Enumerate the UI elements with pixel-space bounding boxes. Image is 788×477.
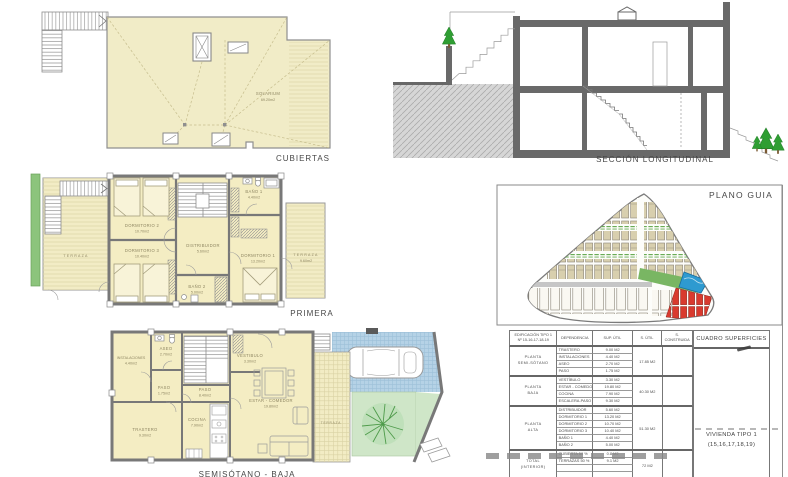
group-total: 40.30 M2 [633,377,662,405]
vivienda-tipo: VIVIENDA TIPO 1 (15,16,17,18,19) [694,431,769,451]
header-sup-util: SUP. ÚTIL [593,331,633,345]
table-dep-cell: TRASTERO [557,347,593,354]
stair-landing [196,194,209,208]
rows: TRASTERO9.00 M2 INSTALACIONES4.40 M2 ASE… [557,347,633,375]
terraza-right-hatch [286,203,325,298]
cuadro-superficies-box: CUADRO SUPERFICIES VIVIENDA TIPO 1 (15,1… [693,330,770,477]
first-floor-plan: TERRAZA DORMITORIO 2 10.70m2 D [31,173,334,318]
header-edificacion-line2: Nº 15-16-17-18-19 [518,338,549,343]
terrain-line [393,82,452,85]
table-row: BAÑO 14.40 M2 [557,435,633,442]
room-area: 4.40m2 [248,196,260,200]
tree-icon [442,27,455,48]
table-sup-cell [593,472,633,477]
table-row: BAÑO 25.00 M2 [557,442,633,449]
ground-floor-plan: TERRAZA [109,328,450,477]
planta-line2: SEMI-SÓTANO [518,361,549,367]
stair-treads [184,336,206,383]
group-construida [663,377,692,405]
table-row: TRASTERO9.00 M2 [557,347,633,354]
header-s-util: S. ÚTIL [633,331,663,345]
tree-icon [772,134,785,154]
table-sup-cell: 9.1 M2 [593,458,633,465]
rows: DISTRIBUIDOR5.60 M2 DORMITORIO 113.20 M2… [557,407,633,449]
room-area: 9.60m2 [300,259,312,263]
table-row: PASO1.75 M2 [557,368,633,375]
exterior-steps [420,438,450,462]
room-label: BAÑO 2 [188,284,206,289]
room-area: 10.70m2 [135,230,149,234]
table-sup-cell: 5.00 M2 [593,442,633,449]
roof-stair-run-top [42,12,108,30]
planta-cell: PLANTA SEMI-SÓTANO [510,347,557,375]
table-row: ESTAR - COMEDOR19.80 M2 [557,384,633,391]
site-plan-title: PLANO GUIA [709,190,773,200]
header-s-construida: S. CONSTRUIDA [662,331,692,345]
planta-line2: ALTA [528,428,539,434]
header-edificacion: EDIFICACIÓN TIPO 1 Nº 15-16-17-18-19 [510,331,557,345]
watermark-dashes [486,453,670,459]
room-area: 13.20m2 [251,260,265,264]
group-total: 51.30 M2 [633,407,662,449]
room-area: 2.70m2 [160,353,172,357]
roof-hatch-peak [618,7,636,12]
table-sup-cell: 19.80 M2 [593,384,633,391]
first-floor-title: PRIMERA [290,309,333,318]
sheet-frame-line [782,185,783,477]
room-label: DORMITORIO 1 [241,253,276,258]
header-dependencia: DEPENDENCIA [557,331,593,345]
cuadro-title: CUADRO SUPERFICIES [694,331,769,349]
terraza-patio-grid [313,352,350,462]
room-area: 1.75m2 [158,392,170,396]
room-label: INSTALACIONES [117,356,146,360]
table-row: DORMITORIO 310.40 M2 [557,428,633,435]
table-row: COCINA7.90 M2 [557,391,633,398]
roof-stair-run-left [42,30,62,72]
watermark-dash-line [695,428,779,430]
table-sup-cell: 9.30 M2 [593,398,633,405]
table-dep-cell: ESCALERA-PASO [557,398,593,405]
terraza-left-label: TERRAZA [63,254,88,258]
room-area: 19.80m2 [264,405,278,409]
table-dep-cell: PASO [557,368,593,375]
rows: VESTÍBULO3.30 M2 ESTAR - COMEDOR19.80 M2… [557,377,633,405]
solarium-area: 69.20m2 [261,98,275,102]
table-group-alta: PLANTA ALTA DISTRIBUIDOR5.60 M2 DORMITOR… [509,407,693,451]
room-area: 5.60m2 [197,250,209,254]
drawing-sheet: SOLARIUM 69.20m2 CUBIERTAS SECCIÓN LONGI… [0,0,788,477]
table-dep-cell: DORMITORIO 2 [557,421,593,428]
room-label: ASEO [160,346,173,351]
table-dep-cell [557,465,593,472]
table-group-baja: PLANTA BAJA VESTÍBULO3.30 M2 ESTAR - COM… [509,377,693,407]
closet [233,335,243,353]
table-row [557,472,633,477]
room-area: 10.40m2 [135,255,149,259]
table-row: VESTÍBULO3.30 M2 [557,377,633,384]
room-label: COCINA [188,417,206,422]
table-header: EDIFICACIÓN TIPO 1 Nº 15-16-17-18-19 DEP… [509,330,693,347]
solarium-railing [450,12,515,46]
vivienda-line1: VIVIENDA TIPO 1 [694,431,769,441]
stair-treads [45,196,61,234]
table-sup-cell: 4.40 M2 [593,354,633,361]
table-sup-cell: 13.20 M2 [593,414,633,421]
table-sup-cell: 7.90 M2 [593,391,633,398]
room-label: PASO [158,385,171,390]
car [347,347,423,378]
table-sup-cell: 5.60 M2 [593,407,633,414]
roof-plan: SOLARIUM 69.20m2 CUBIERTAS [42,12,330,163]
room-label: DISTRIBUIDOR [186,243,220,248]
table-row: ESCALERA-PASO9.30 M2 [557,398,633,405]
solarium-deck-hatch [289,42,328,146]
room-label: BAÑO 1 [245,189,263,194]
roof-hatch-box [618,12,636,20]
table-dep-cell: INSTALACIONES [557,354,593,361]
tree-icon [758,128,774,153]
solarium-label: SOLARIUM [256,91,280,96]
exterior-stair-zigzag [452,29,515,80]
table-dep-cell: VESTÍBULO [557,377,593,384]
door-outline [653,42,667,86]
stair-treads [60,181,108,196]
vivienda-line2: (15,16,17,18,19) [694,441,769,451]
room-area: 4.40m2 [125,362,137,366]
room-label: DORMITORIO 2 [125,223,160,228]
ground-hatch [393,84,513,158]
table-dep-cell: BAÑO 1 [557,435,593,442]
room-area: 5.00m2 [191,291,203,295]
table-sup-cell [593,465,633,472]
table-dep-cell [557,472,593,477]
room-label: VESTIBULO [237,353,264,358]
room-label: PASO [199,387,212,392]
table-dep-cell: TERRAZAS 50 % [557,458,593,465]
room-label: DORMITORIO 3 [125,248,160,253]
room-area: 7.90m2 [191,424,203,428]
room-label: TERRAZA [293,253,318,257]
group-construida [663,407,692,449]
stair-flight-lower [619,114,647,146]
planta-cell: PLANTA BAJA [510,377,557,405]
planta-cell: PLANTA ALTA [510,407,557,449]
room-label: TERRAZA [321,421,342,425]
room-area: 9.30m2 [139,434,151,438]
pergola-green-strip [31,174,40,286]
table-row: TERRAZAS 50 %9.1 M2 [557,458,633,465]
roof-plan-title: CUBIERTAS [276,154,330,163]
table-sup-cell: 3.30 M2 [593,377,633,384]
table-sup-cell: 10.70 M2 [593,421,633,428]
gate-marker [366,328,378,334]
table-dep-cell: DORMITORIO 3 [557,428,593,435]
room-area: 8.40m2 [199,394,211,398]
table-row: DORMITORIO 113.20 M2 [557,414,633,421]
table-sup-cell: 9.00 M2 [593,347,633,354]
group-total: 17.85 M2 [633,347,662,375]
table-dep-cell: ASEO [557,361,593,368]
planta-line2: (INTERIOR) [521,465,546,471]
section-drawing: SECCIÓN LONGITUDINAL [393,2,784,164]
table-sup-cell: 4.40 M2 [593,435,633,442]
group-construida [663,347,692,375]
table-sup-cell: 10.40 M2 [593,428,633,435]
table-sup-cell: 1.75 M2 [593,368,633,375]
section-title: SECCIÓN LONGITUDINAL [596,155,714,164]
room-label: TRASTERO [132,427,158,432]
table-sup-cell: 2.70 M2 [593,361,633,368]
table-dep-cell: BAÑO 2 [557,442,593,449]
table-dep-cell: DORMITORIO 1 [557,414,593,421]
room-area: 3.30m2 [244,360,256,364]
table-row: DISTRIBUIDOR5.60 M2 [557,407,633,414]
table-row: DORMITORIO 210.70 M2 [557,421,633,428]
table-dep-cell: COCINA [557,391,593,398]
stair-treads [206,336,228,360]
planta-line2: BAJA [528,391,539,397]
ground-floor-title: SEMISÓTANO - BAJA [199,470,296,477]
table-dep-cell: DISTRIBUIDOR [557,407,593,414]
table-dep-cell: ESTAR - COMEDOR [557,384,593,391]
entrance-steps-treads [313,334,330,350]
stair-rail [583,86,647,150]
ridge-node [223,123,226,126]
site-plan: PLANO GUIA [497,185,782,325]
table-group-semisotano: PLANTA SEMI-SÓTANO TRASTERO9.00 M2 INSTA… [509,347,693,377]
room-label: ESTAR - COMEDOR [249,398,293,403]
table-row: ASEO2.70 M2 [557,361,633,368]
ridge-node [183,123,186,126]
table-row [557,465,633,472]
table-row: INSTALACIONES4.40 M2 [557,354,633,361]
